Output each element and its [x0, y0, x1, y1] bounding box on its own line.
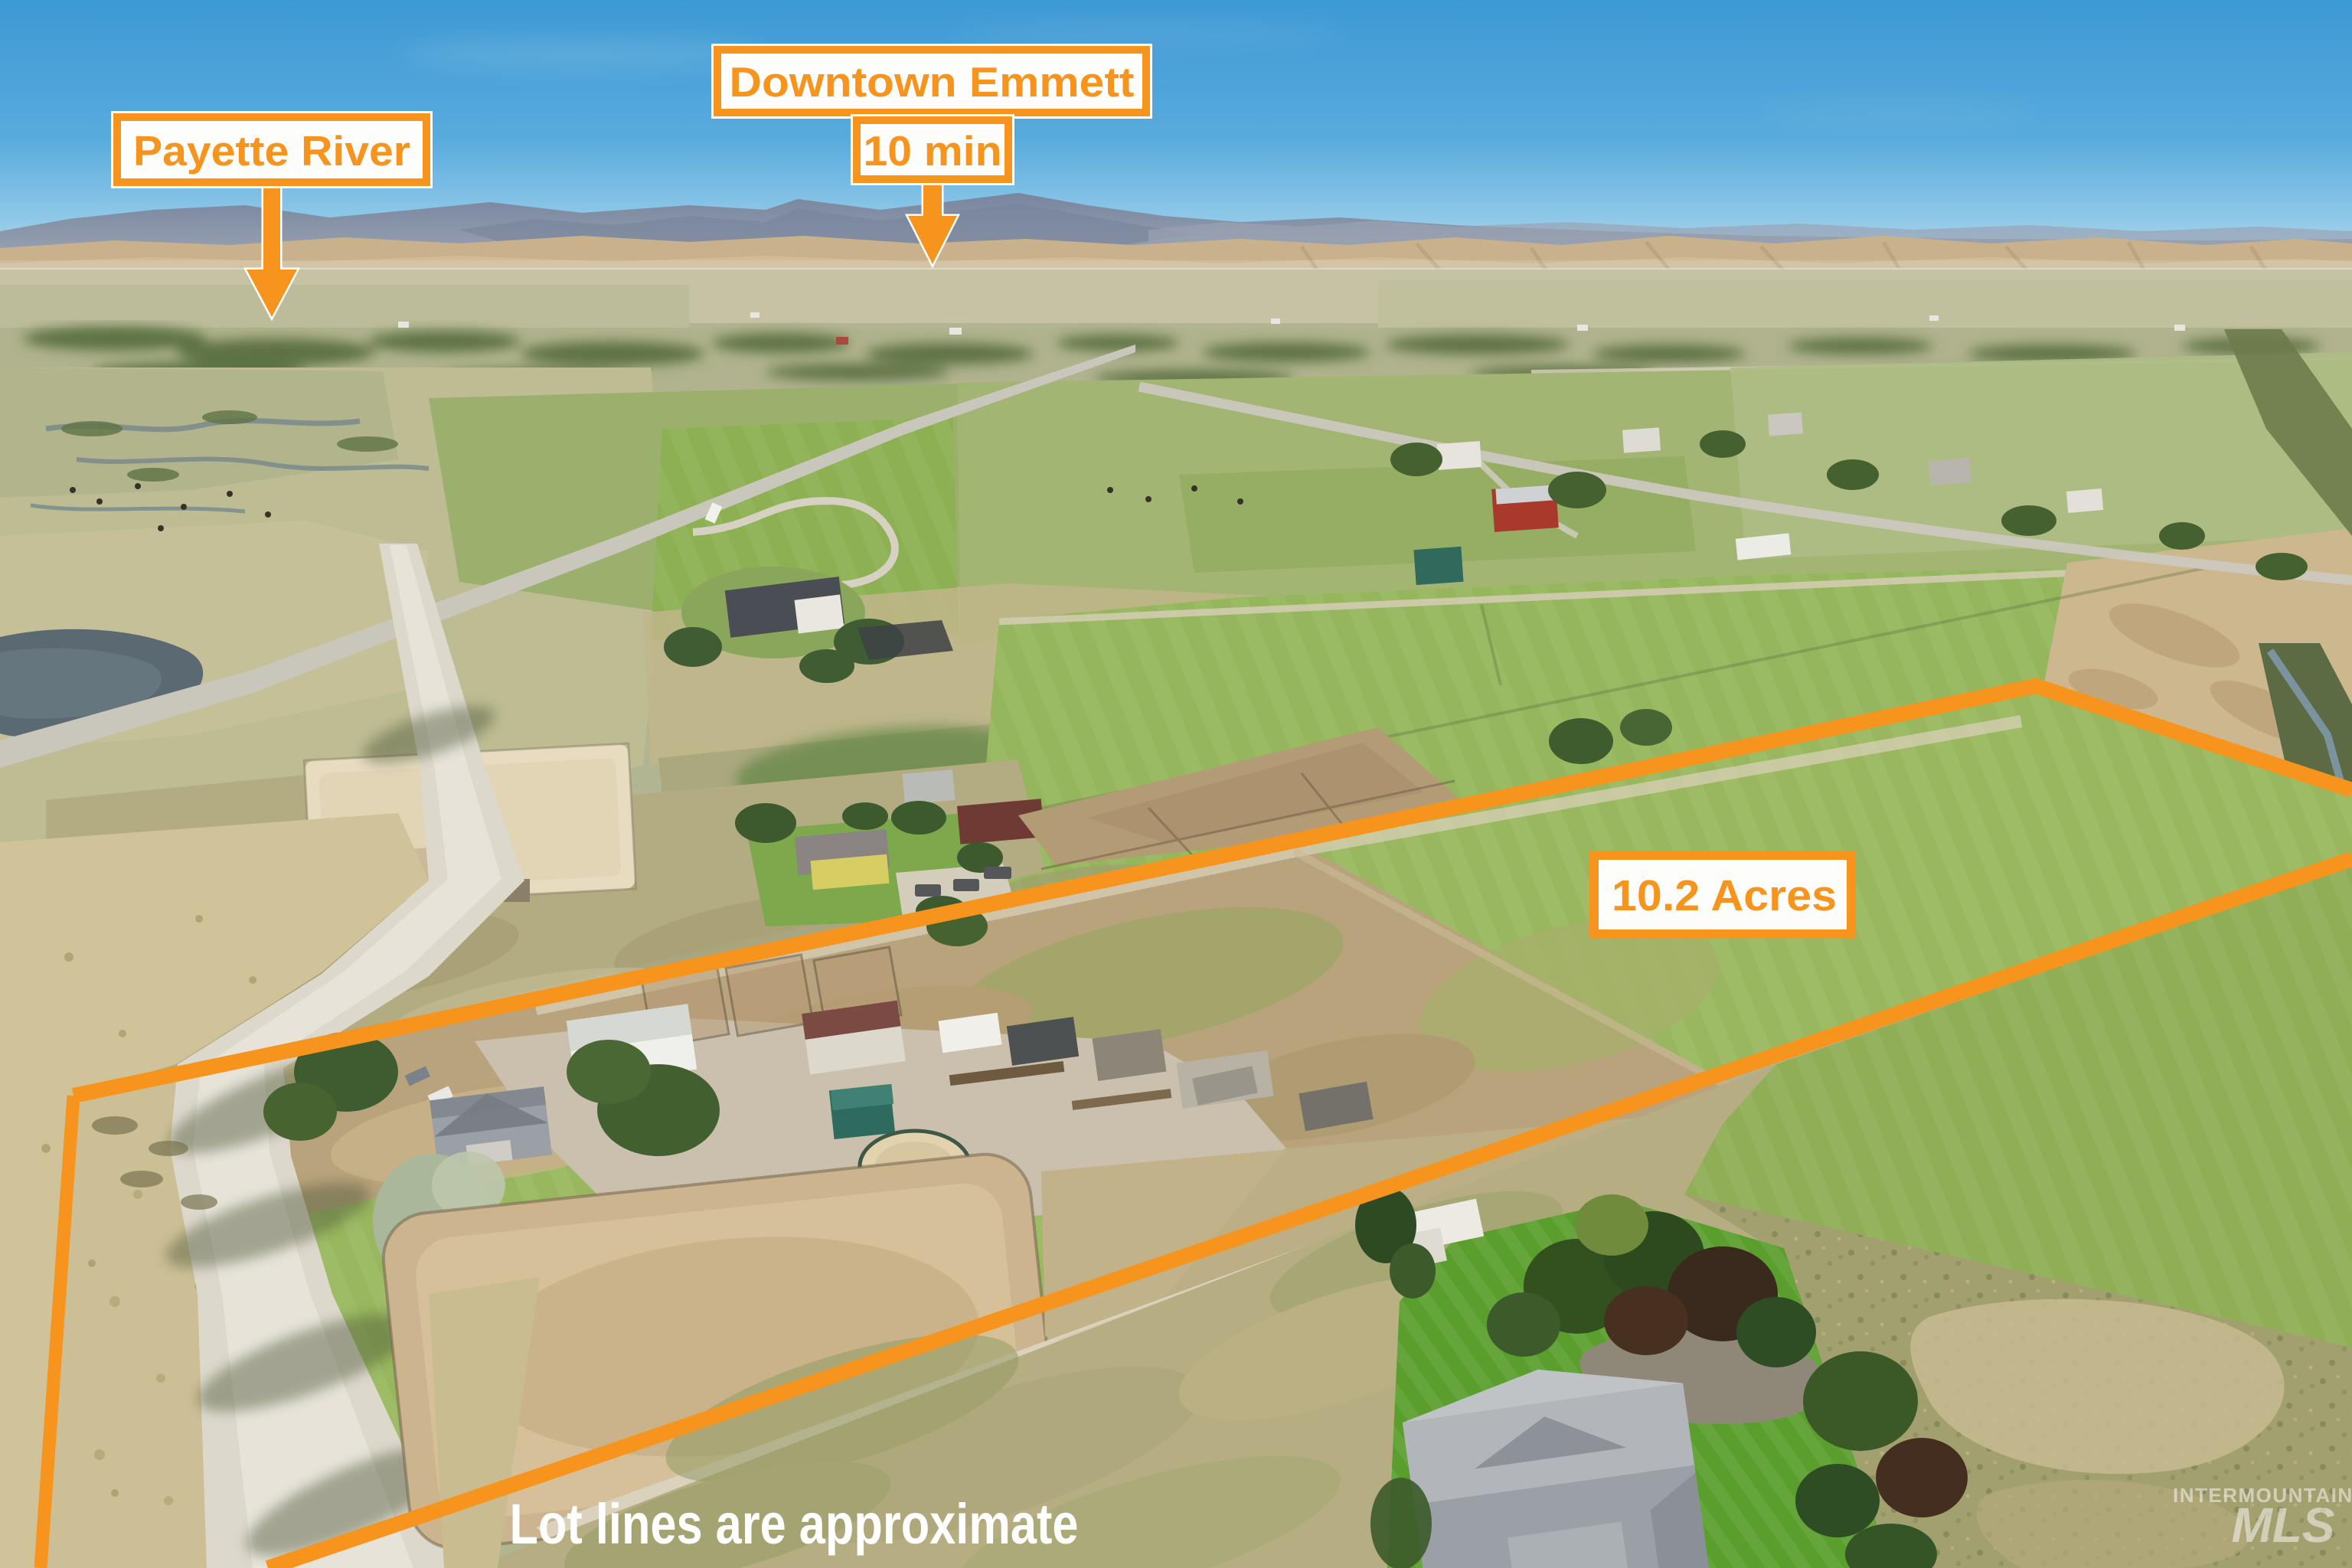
svg-text:MLS: MLS — [2231, 1498, 2334, 1553]
svg-text:Downtown Emmett: Downtown Emmett — [730, 58, 1135, 106]
svg-text:Lot lines are approximate: Lot lines are approximate — [510, 1492, 1079, 1556]
svg-text:Payette River: Payette River — [133, 127, 410, 175]
svg-text:10 min: 10 min — [864, 127, 1002, 175]
svg-text:10.2 Acres: 10.2 Acres — [1612, 871, 1837, 920]
